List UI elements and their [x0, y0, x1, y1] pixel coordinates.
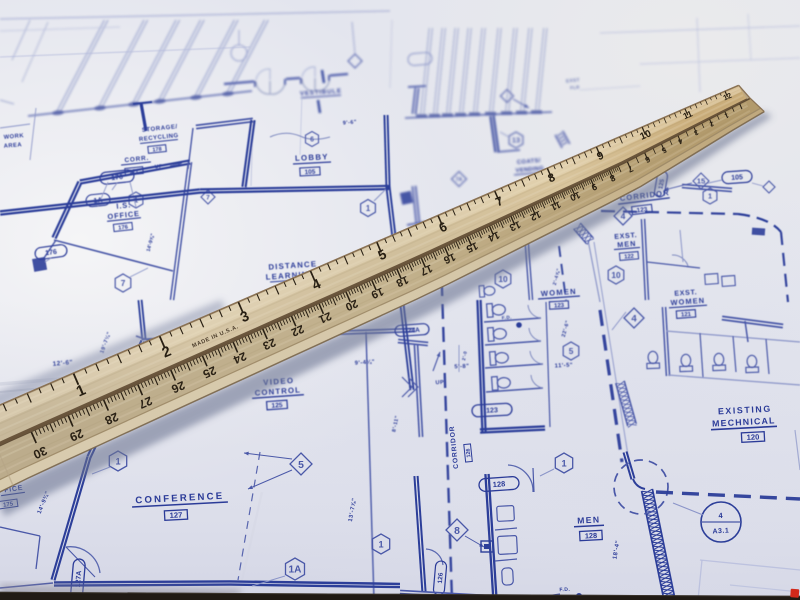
- svg-text:4: 4: [718, 511, 723, 520]
- svg-text:UP: UP: [435, 380, 444, 387]
- svg-text:122: 122: [624, 254, 634, 261]
- svg-text:5: 5: [569, 346, 574, 356]
- svg-text:A3.1: A3.1: [712, 528, 729, 536]
- svg-text:178: 178: [152, 147, 162, 154]
- svg-text:F.D.: F.D.: [559, 587, 570, 594]
- svg-text:MEN: MEN: [577, 514, 601, 525]
- svg-text:7: 7: [206, 194, 210, 201]
- svg-text:176: 176: [118, 225, 129, 232]
- svg-text:128: 128: [585, 531, 598, 541]
- svg-text:F.D.: F.D.: [502, 315, 512, 321]
- svg-text:FLR: FLR: [570, 85, 580, 91]
- svg-text:9'-4¼": 9'-4¼": [355, 358, 376, 366]
- svg-text:127: 127: [169, 510, 182, 520]
- svg-text:105: 105: [305, 169, 316, 177]
- svg-text:121: 121: [681, 312, 692, 319]
- svg-text:126: 126: [465, 448, 472, 458]
- svg-text:9'-6": 9'-6": [343, 119, 358, 126]
- svg-text:13: 13: [512, 136, 520, 145]
- svg-text:4: 4: [631, 313, 637, 324]
- svg-text:1: 1: [561, 458, 566, 468]
- svg-text:1: 1: [708, 192, 712, 201]
- svg-text:EXST: EXST: [566, 77, 580, 84]
- svg-text:126: 126: [437, 572, 445, 584]
- svg-text:15: 15: [697, 177, 706, 186]
- svg-text:10: 10: [611, 270, 621, 280]
- svg-text:7: 7: [121, 278, 126, 288]
- svg-text:11'-5": 11'-5": [555, 363, 574, 370]
- svg-text:125: 125: [271, 402, 283, 410]
- svg-text:124A: 124A: [404, 327, 420, 335]
- svg-text:123: 123: [554, 303, 565, 310]
- svg-text:8: 8: [454, 526, 460, 537]
- svg-text:7A: 7A: [456, 177, 463, 183]
- svg-text:123: 123: [486, 407, 498, 415]
- svg-text:128: 128: [492, 479, 505, 489]
- svg-text:105: 105: [731, 174, 743, 182]
- svg-text:1: 1: [366, 204, 371, 213]
- svg-text:5'-8": 5'-8": [454, 364, 469, 371]
- svg-text:1A: 1A: [289, 565, 303, 576]
- svg-text:LOBBY: LOBBY: [295, 152, 329, 163]
- svg-text:5: 5: [298, 460, 304, 471]
- svg-text:1: 1: [378, 539, 383, 549]
- svg-text:6: 6: [310, 137, 314, 144]
- svg-text:123: 123: [636, 206, 648, 214]
- svg-text:120: 120: [746, 432, 759, 442]
- svg-text:127A: 127A: [75, 570, 83, 587]
